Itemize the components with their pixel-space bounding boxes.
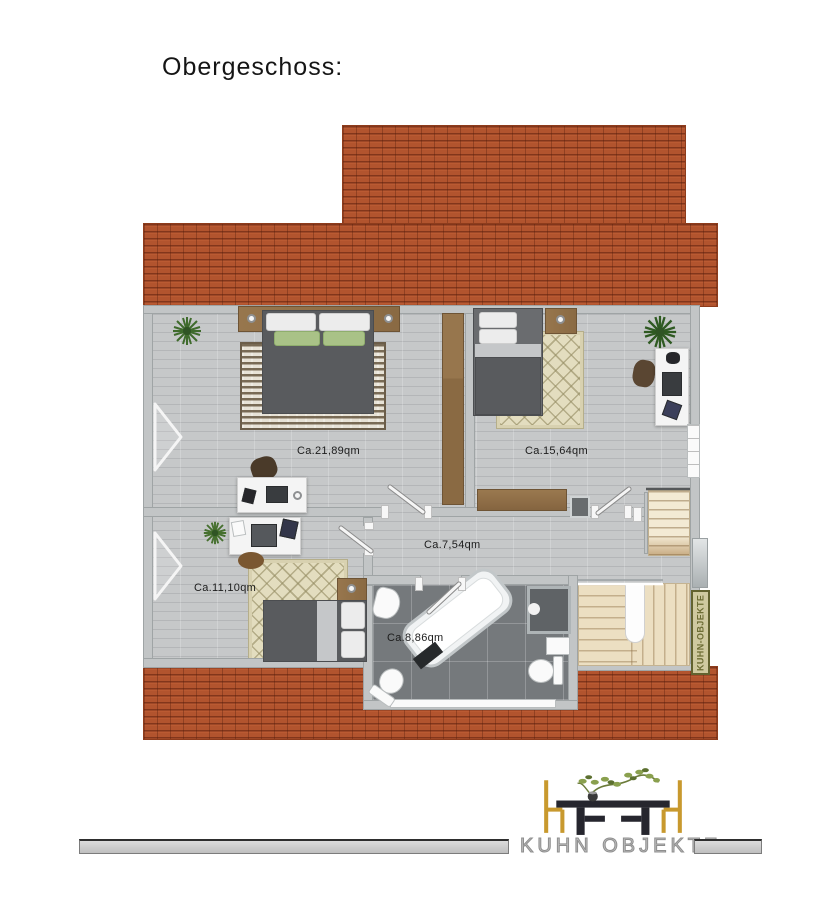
page-canvas: Obergeschoss: — [0, 0, 831, 913]
door-small-bedroom — [341, 528, 371, 551]
plant — [204, 522, 226, 544]
room-label-bathroom: Ca.8,86qm — [387, 633, 444, 644]
logo-table — [556, 801, 669, 835]
door-swings — [341, 487, 629, 612]
logo-bonsai — [578, 768, 660, 801]
window-master-bedroom — [155, 404, 181, 470]
door-right-bedroom — [598, 489, 629, 513]
door-master-bedroom — [390, 487, 423, 512]
footer-logo-text: KUHN OBJEKTE — [520, 835, 688, 858]
company-logo — [532, 762, 694, 838]
plant — [173, 317, 201, 345]
room-label-master: Ca.21,89qm — [297, 446, 360, 457]
room-label-right: Ca.15,64qm — [525, 446, 588, 457]
footer-bar-right — [694, 839, 762, 854]
window-small-bedroom — [155, 533, 181, 599]
room-label-hallway: Ca.7,54qm — [424, 540, 481, 551]
plan-line-overlay — [0, 0, 831, 913]
footer-bar-left — [79, 839, 509, 854]
door-bathroom — [429, 584, 459, 612]
room-label-small: Ca.11,10qm — [194, 583, 256, 594]
plant — [644, 316, 676, 348]
